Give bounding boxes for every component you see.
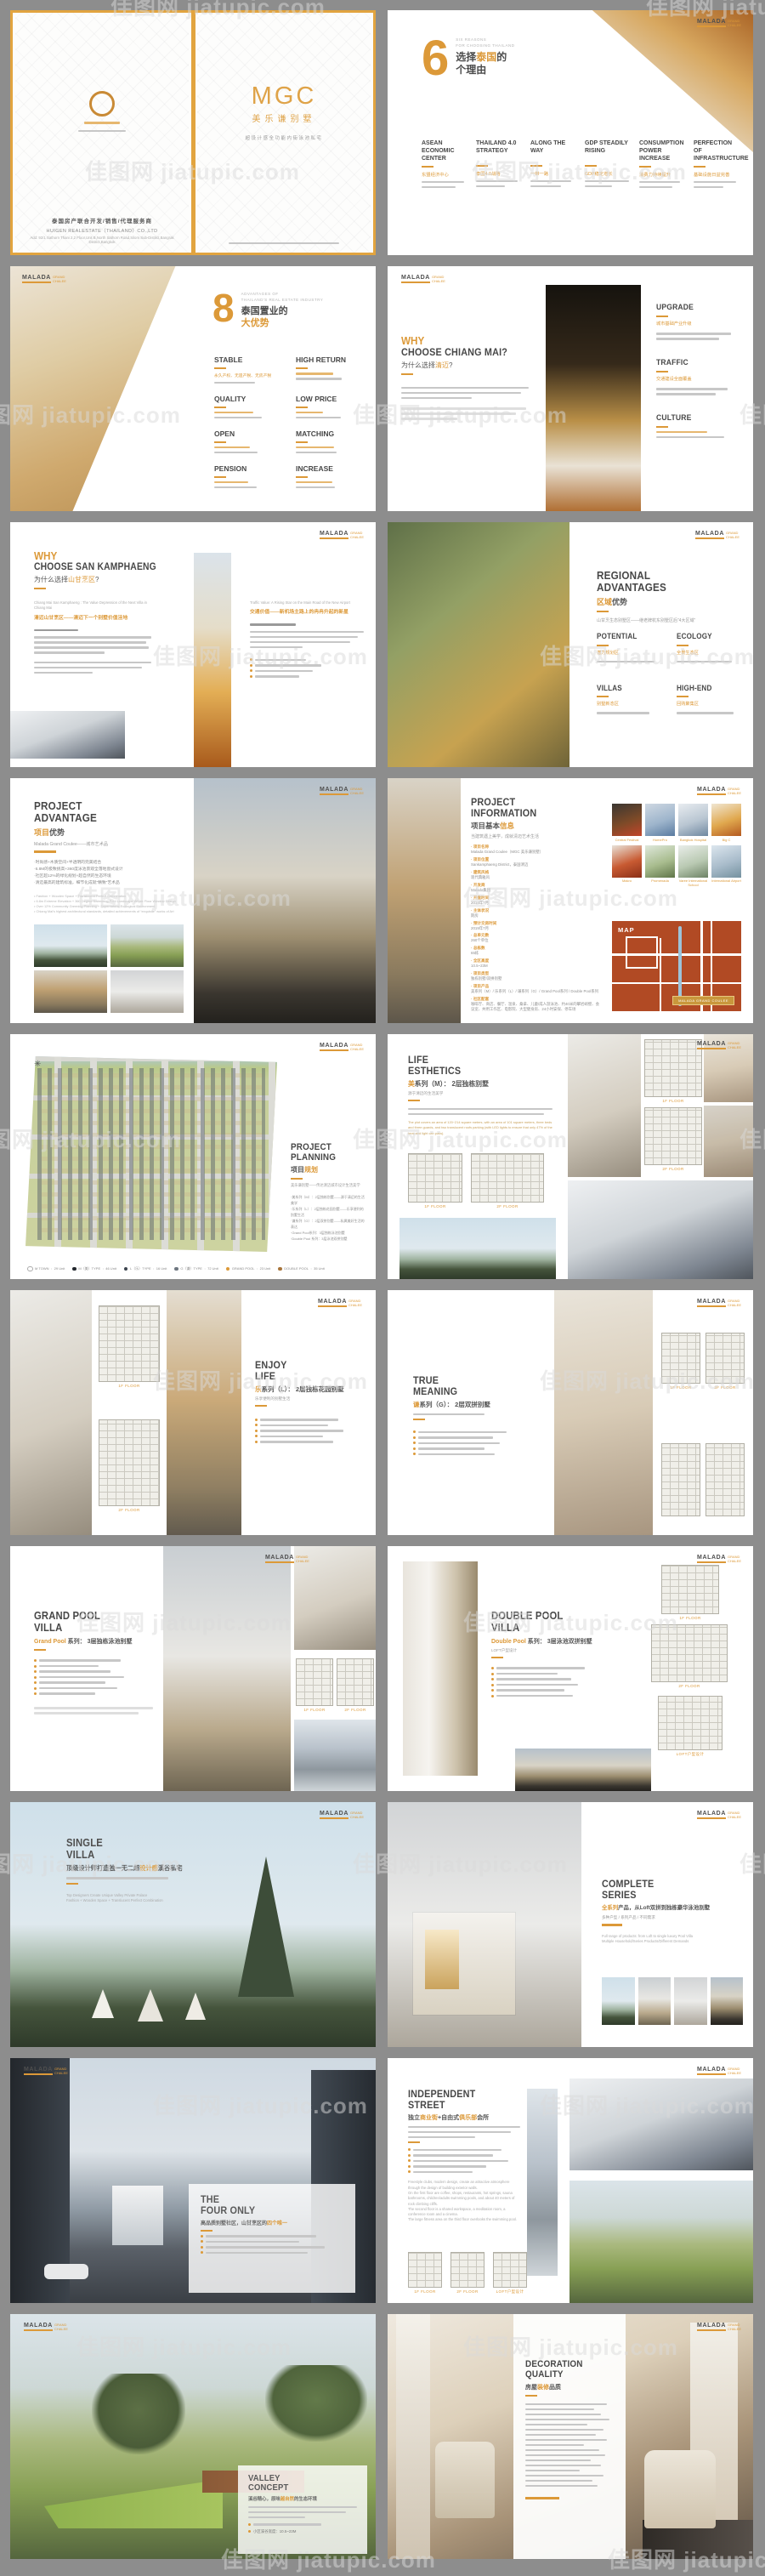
bullet-item — [201, 2246, 343, 2249]
spread-true-meaning: MALADA GRANDCHALEE TRUEMEANING 谦系列（G）： 2… — [388, 1290, 753, 1535]
text-line — [214, 382, 255, 384]
window-curtain — [396, 2314, 430, 2559]
text-line — [206, 2252, 308, 2255]
render-thumb — [34, 970, 107, 1013]
info-field: 总单元数260个单位 — [471, 933, 600, 943]
accent-dash — [597, 696, 609, 697]
amenity-cell: Varee International School — [678, 845, 708, 888]
amenity-cell: Makro — [612, 845, 642, 888]
reason-en: CONSUMPTION POWER INCREASE — [639, 139, 687, 162]
text-line — [255, 670, 313, 673]
page-title-2: VILLA — [66, 1849, 94, 1861]
bullet-item — [255, 1424, 364, 1426]
page-title-2: VILLA — [491, 1622, 519, 1634]
brand-name: MALADA — [401, 275, 430, 283]
brand-name: MALADA — [24, 2067, 53, 2075]
text-line — [525, 2434, 596, 2437]
text-line — [296, 378, 342, 380]
text-line — [248, 2516, 305, 2519]
company-name-en: HUIGEN REALESTATE（THAILAND）CO.,LTD — [22, 227, 182, 234]
cover-back-footer: 泰国房产联合开发/销售/代理服务商 HUIGEN REALESTATE（THAI… — [22, 216, 182, 244]
legend-item: M（美）TYPE: 46 Unit — [72, 1266, 116, 1271]
malada-logo: MALADA GRANDCHALEE — [22, 275, 66, 283]
brand-name: MALADA — [320, 1811, 348, 1819]
developer-logo-icon — [89, 91, 115, 117]
bullet-item — [491, 1689, 619, 1692]
accent-dash — [201, 2230, 212, 2232]
bullet-item — [491, 1678, 619, 1680]
text-line — [34, 646, 149, 649]
brand-sub: GRANDCHALEE — [350, 787, 364, 795]
bullet-item — [250, 669, 364, 672]
render-thumb — [34, 924, 107, 967]
brand-sub: GRANDCHALEE — [728, 19, 741, 27]
plan-homes — [37, 1068, 265, 1240]
text-line — [250, 636, 358, 639]
text-line — [476, 185, 505, 188]
amenity-photo — [678, 845, 708, 878]
advantage-en: HIGH RETURN — [296, 355, 364, 364]
col2-cn: 交通价值——新机场主路上的冉冉升起的新星 — [250, 607, 364, 615]
dp-text-block: DOUBLE POOLVILLA Double Pool 系列： 3层泳池双拼别… — [491, 1611, 619, 1700]
wardrobe-photo — [167, 1290, 241, 1535]
valley-overlay: VALLEYCONCEPT 溪谷精心，原味越自然的生态环境 小区溪谷宽度：10.… — [238, 2465, 367, 2554]
map-title: MAP — [618, 926, 635, 934]
is-en-paragraph: On the first floor are coffee, shops, re… — [408, 2191, 520, 2207]
brand-sub: GRANDCHALEE — [728, 2323, 741, 2331]
pi-fields: 项目名称Malada Grand Coulee（MGC 美乐谦别墅） 项目位置S… — [471, 844, 600, 1012]
text-line — [34, 667, 142, 669]
brand-sub: GRANDCHALEE — [54, 2323, 68, 2331]
page-title-2: CONCEPT — [248, 2482, 288, 2493]
text-line — [597, 661, 654, 663]
spread-grand-pool-villa: MALADA GRANDCHALEE GRAND POOLVILLA Grand… — [10, 1546, 376, 1791]
page-title-1: LIFE — [408, 1054, 428, 1066]
text-line — [296, 412, 323, 414]
malada-logo: MALADA GRANDCHALEE — [265, 1555, 309, 1563]
text-line — [525, 2470, 580, 2472]
text-line — [525, 2414, 601, 2416]
malada-logo: MALADA GRANDCHALEE — [697, 2067, 741, 2075]
spiral-building-photo — [10, 266, 194, 511]
cs-en-2: Multiple Household/Series Products/Diffe… — [602, 1939, 741, 1944]
accent-dash — [639, 166, 651, 168]
reason-item: ASEAN ECONOMIC CENTER 东盟经济中心 — [422, 139, 469, 191]
text-line — [496, 1678, 571, 1680]
text-line — [525, 2454, 605, 2457]
legend-item: G（谦）TYPE: 72 Unit — [174, 1266, 218, 1271]
series-tagline: LOFT户型设计 — [491, 1648, 619, 1653]
company-address: Add: 92/1 Sathorn Thani 2,2 Floor,Unit B… — [22, 236, 182, 244]
text-line — [525, 2419, 609, 2421]
amenity-cell: International Airport — [711, 845, 741, 888]
bullet-item — [34, 1665, 153, 1668]
bedroom-photo — [554, 1290, 653, 1535]
title-cn: 房屋装修品质 — [525, 2383, 614, 2391]
text-line — [422, 181, 464, 184]
info-field: 社区配套咖啡厅、商店、餐厅、温泉、桑拿、儿童/成人游泳池、约40米的攀岩峭壁、会… — [471, 997, 600, 1012]
paragraph-placeholder — [491, 1667, 619, 1697]
malada-logo: MALADA GRANDCHALEE — [320, 787, 364, 795]
planning-bullets: ·美系列（M）：2层独栋别墅——源于清迈的生活美学 ·乐系列（L）：2层独栋花园… — [291, 1194, 365, 1242]
bullet-item — [34, 1676, 153, 1679]
bullet-item — [491, 1673, 619, 1675]
reason-en: ALONG THE WAY — [530, 139, 578, 162]
text-line — [250, 631, 364, 634]
villa-window-glow — [425, 1930, 459, 1989]
spread-four-only: MALADA GRANDCHALEE THEFOUR ONLY 高品质别墅社区，… — [10, 2058, 376, 2303]
bullet: ·谦系列（G）：2层双拼别墅——私属美好生活的表达 — [291, 1218, 365, 1230]
text-line — [525, 2485, 598, 2488]
car — [44, 2264, 88, 2279]
sk-col2: Traffic Value: A Rising Star on the Main… — [250, 600, 364, 680]
text-line — [525, 2403, 607, 2406]
page-title-2: ESTHETICS — [408, 1065, 461, 1077]
text-line — [413, 2149, 501, 2152]
text-line — [296, 372, 333, 375]
floorplan — [705, 1333, 745, 1384]
text-line — [656, 333, 731, 335]
page-title-2: INFORMATION — [471, 807, 536, 819]
accent-dash — [408, 1100, 420, 1101]
brand-sub: GRANDCHALEE — [348, 1299, 362, 1307]
advantage-en: OPEN — [214, 429, 282, 438]
brand-sub: GRANDCHALEE — [53, 275, 66, 283]
spread-decoration-quality: MALADA GRANDCHALEE DECORATIONQUALITY 房屋装… — [388, 2314, 753, 2559]
reason-cn: 消费力持续提升 — [639, 171, 687, 178]
amenity-photo — [678, 804, 708, 836]
regional-item: ECOLOGY 全景生态区 — [677, 633, 741, 666]
text-line — [677, 661, 732, 663]
text-line — [255, 659, 306, 662]
sv-text-block: SINGLEVILLA 顶级设计师打造独一无二超设计感溪谷私宅 Top Desi… — [66, 1838, 253, 1903]
floorplan-cell: 2F FLOOR — [99, 1419, 160, 1512]
subtitle-en-2: Fashion + Wooden Space + Translucent Per… — [66, 1898, 253, 1903]
bullet-item — [413, 1442, 541, 1444]
bullet-item — [34, 1687, 153, 1690]
sofa — [644, 2450, 716, 2528]
text-line — [496, 1667, 585, 1669]
text-line — [496, 1689, 564, 1692]
text-line — [34, 641, 146, 644]
reason-en: THAILAND 4.0 STRATEGY — [476, 139, 524, 162]
text-line — [677, 712, 734, 714]
title-cn: 高品质别墅社区，山甘烹区的四个唯一 — [201, 2219, 343, 2226]
spread-double-pool-villa: MALADA GRANDCHALEE DOUBLE POOLVILLA Doub… — [388, 1546, 753, 1791]
text-line — [656, 388, 728, 390]
text-line — [214, 417, 262, 419]
pa-bullets-cn: ·时尚感+木质空间+半透明的完美结合 ·6.8M的极致挑高+360度泳池景观全落… — [34, 860, 184, 888]
reason-cn: GDP稳定增长 — [585, 170, 632, 177]
upgrade-block: UPGRADE 城市基础产业升级 — [656, 304, 741, 340]
title-cn: 独立商业街+自由式俱乐部会所 — [408, 2113, 520, 2122]
culture-block: CULTURE — [656, 414, 741, 439]
reason-cn: 一带一路 — [530, 170, 578, 177]
big-number: 6 — [422, 37, 449, 79]
map-road — [612, 982, 741, 984]
brand-name: MALADA — [24, 2323, 53, 2331]
page-title-1: COMPLETE — [602, 1878, 654, 1890]
amenity-cell: HomePro — [645, 804, 675, 842]
text-line — [585, 180, 629, 183]
spread-independent-street: MALADA GRANDCHALEE INDEPENDENTSTREET 独立商… — [388, 2058, 753, 2303]
cs-thumb-row — [602, 1977, 743, 2025]
bullet-item — [250, 675, 364, 678]
reason-item: GDP STEADILY RISING GDP稳定增长 — [585, 139, 632, 191]
title-cn: 项目优势 — [34, 827, 184, 838]
info-field: 项目名称Malada Grand Coulee（MGC 美乐谦别墅） — [471, 844, 600, 855]
text-line — [250, 641, 350, 644]
floorplan — [661, 1443, 700, 1516]
cover-front-footer — [204, 242, 364, 245]
title-cn: 项目基本信息 — [471, 821, 600, 831]
bullet-item — [248, 2523, 357, 2526]
accent-dash — [656, 316, 668, 317]
brand-sub: GRANDCHALEE — [296, 1555, 309, 1563]
item-cn: 别墅新态区 — [597, 701, 661, 707]
text-line — [34, 1712, 139, 1714]
malada-logo: MALADA GRANDCHALEE — [401, 275, 445, 283]
series-title: Double Pool 系列： 3层泳池双拼别墅 — [491, 1637, 619, 1646]
four-only-overlay: THEFOUR ONLY 高品质别墅社区，山甘烹区的四个唯一 — [189, 2184, 355, 2293]
street-render — [569, 2078, 753, 2170]
text-line — [296, 446, 334, 449]
malada-logo: MALADA GRANDCHALEE — [695, 531, 739, 539]
text-line — [413, 2160, 508, 2163]
advantage-en: INCREASE — [296, 464, 364, 473]
title-cn: 项目规划 — [291, 1165, 365, 1174]
el-text-block: ENJOYLIFE 乐系列（L）： 2层独栋花园别墅 乐享便利的别墅生活 — [255, 1360, 364, 1446]
legend-item: M TOWN: 29 Unit — [27, 1266, 65, 1272]
accent-dash — [677, 696, 688, 697]
brand-sub: GRANDCHALEE — [350, 1811, 364, 1819]
malada-logo: MALADA GRANDCHALEE — [697, 1555, 741, 1563]
lake-photo — [10, 711, 125, 759]
floorplan — [337, 1658, 374, 1706]
text-line — [656, 431, 707, 434]
floorplan-cell: 1F FLOOR — [296, 1658, 333, 1712]
brand-name: MALADA — [697, 2323, 726, 2331]
advantage-en: LOW PRICE — [296, 395, 364, 403]
text-line — [214, 486, 257, 489]
info-field: 全区高度10.5~23M — [471, 958, 600, 969]
page-title-2: LIFE — [255, 1370, 275, 1382]
text-line — [525, 2444, 584, 2447]
bullet-item — [255, 1419, 364, 1421]
floorplan-cell: 2F FLOOR — [644, 1107, 702, 1171]
advantage-item: STABLE 永久产权、无遗产税、无房产税 — [214, 355, 282, 387]
amenity-photo — [612, 804, 642, 836]
reason-item: CONSUMPTION POWER INCREASE 消费力持续提升 — [639, 139, 687, 191]
tm-text-block: TRUEMEANING 谦系列（G）： 2层双拼别墅 — [413, 1375, 541, 1459]
malada-logo: MALADA GRANDCHALEE — [697, 1299, 741, 1307]
bullet-item — [413, 1436, 541, 1439]
gp-text-block: GRAND POOLVILLA Grand Pool 系列： 3层独栋泳池别墅 — [34, 1611, 153, 1717]
accent-dash — [530, 165, 542, 167]
text-line — [250, 623, 296, 626]
floorplan-cell: 1F FLOOR — [661, 1565, 719, 1620]
text-line — [525, 2459, 591, 2462]
page-title-2: PLANNING — [291, 1152, 336, 1163]
floorplan — [99, 1305, 160, 1382]
floorplan — [644, 1039, 702, 1097]
info-field: 主体状况期房 — [471, 908, 600, 918]
spread-project-advantage: MALADA GRANDCHALEE PROJECTADVANTAGE 项目优势… — [10, 778, 376, 1023]
item-en: POTENTIAL — [597, 633, 654, 641]
floorplan-cell: 2F FLOOR — [651, 1624, 728, 1688]
bullet: ·Grand Pool系列：3层独栋泳池别墅 — [291, 1230, 365, 1236]
accent-dash — [413, 1419, 425, 1420]
page-title-1: DOUBLE POOL — [491, 1610, 563, 1622]
item-cn: 全景生态区 — [677, 650, 741, 656]
spread-why-chiangmai: MALADA GRANDCHALEE WHY CHOOSE CHIANG MAI… — [388, 266, 753, 511]
text-line — [408, 2136, 475, 2139]
item-cn: 潜力规划区 — [597, 650, 661, 656]
dq-panel: DECORATIONQUALITY 房屋装修品质 — [513, 2314, 626, 2559]
tall-building-photo — [194, 553, 231, 767]
regional-item: POTENTIAL 潜力规划区 — [597, 633, 661, 666]
text-line — [39, 1665, 99, 1668]
brand-sub: GRANDCHALEE — [726, 531, 739, 539]
text-line — [525, 2480, 592, 2482]
bullet-item — [250, 664, 364, 667]
brand-sub: GRANDCHALEE — [728, 1811, 741, 1819]
amenity-photo — [612, 845, 642, 878]
bullet-item — [413, 1430, 541, 1433]
floorpl an-cell: 1F FLOOR — [661, 1333, 700, 1390]
text-line — [229, 242, 339, 245]
floorplan — [661, 1333, 700, 1384]
text-line — [214, 446, 250, 449]
item-cn: 回购聚集区 — [677, 701, 741, 707]
atrium-photo — [403, 1561, 478, 1776]
text-line — [296, 486, 335, 489]
malada-logo: MALADA GRANDCHALEE — [697, 1811, 741, 1819]
pa-subtitle: Malada Grand Coulee——城市艺术品 — [34, 841, 184, 847]
accent-dash — [585, 165, 597, 167]
text-line — [496, 1673, 558, 1675]
accent-dash — [214, 441, 226, 443]
accent-dash — [602, 1924, 622, 1926]
accent-dash — [408, 2141, 420, 2143]
render-thumb — [110, 970, 184, 1013]
floorplan — [661, 1565, 719, 1614]
spread-single-villa: MALADA GRANDCHALEE SINGLEVILLA 顶级设计师打造独一… — [10, 1802, 376, 2047]
page-title: CHOOSE SAN KAMPHAENG — [34, 562, 164, 572]
bullet-item — [201, 2235, 343, 2238]
text-line — [401, 387, 529, 390]
text-line — [496, 1695, 573, 1697]
dining-photo — [568, 1034, 641, 1177]
text-line — [260, 1419, 338, 1421]
brand-sub: GRANDCHALEE — [350, 531, 364, 539]
text-line — [248, 2511, 346, 2514]
text-line — [296, 417, 341, 419]
accent-dash — [525, 2497, 559, 2499]
title-cn: 区域优势 — [597, 596, 739, 607]
master-plan-map — [25, 1056, 277, 1252]
big-number: 8 — [212, 292, 235, 329]
page-title-2: STREET — [408, 2099, 445, 2111]
text-line — [255, 664, 321, 667]
text-line — [530, 185, 561, 188]
floorplan-cell: 2F FLOOR — [705, 1333, 745, 1390]
malada-logo: MALADA GRANDCHALEE — [320, 1043, 364, 1051]
bullet-item — [250, 658, 364, 661]
text-line — [408, 2131, 511, 2134]
tree-canopy — [92, 2374, 185, 2454]
text-line — [656, 338, 719, 340]
text-line — [260, 1430, 343, 1432]
text-line — [34, 672, 93, 674]
series-tagline: 乐享便利的别墅生活 — [255, 1396, 364, 1402]
item-en: ECOLOGY — [677, 633, 734, 641]
advantage-item: INCREASE — [296, 464, 364, 492]
spread-cover: 泰国房产联合开发/销售/代理服务商 HUIGEN REALESTATE（THAI… — [10, 10, 376, 255]
text-line — [206, 2241, 299, 2243]
spread-regional-advantages: MALADA GRANDCHALEE REGIONALADVANTAGES 区域… — [388, 522, 753, 767]
col2-en: Traffic Value: A Rising Star on the Main… — [250, 600, 364, 606]
advantage-item: HIGH RETURN — [296, 355, 364, 387]
brand-name: MALADA — [320, 531, 348, 539]
series-paragraph-en: The plot covers an area of 120~214 squar… — [408, 1120, 552, 1135]
planning-subtitle: 美乐谦别墅——传达清迈城市设计生活美学 — [291, 1183, 365, 1188]
page-title-1: VALLEY — [248, 2473, 280, 2483]
text-line — [206, 2235, 316, 2238]
text-line — [418, 1447, 484, 1450]
text-line — [296, 452, 337, 454]
accent-dash — [214, 407, 226, 408]
bullet-item — [255, 1441, 364, 1443]
map-road — [660, 938, 661, 1011]
series-title: 美系列（M）： 2层独栋别墅 — [408, 1079, 552, 1089]
info-field: 建筑风格现代典雅风 — [471, 870, 600, 880]
is-en-paragraph: The large fitness area on the third floo… — [408, 2217, 520, 2222]
amenity-photo — [711, 845, 741, 878]
text-line — [39, 1659, 121, 1662]
floorplan — [408, 2252, 442, 2288]
chiangmai-text-block: WHY CHOOSE CHIANG MAI? 为什么选择清迈? — [401, 334, 529, 423]
text-line — [656, 436, 724, 439]
traffic-block: TRAFFIC 交通建设全面覆盖 — [656, 359, 741, 395]
text-line — [413, 2171, 473, 2174]
bullet-cn: ·时尚感+木质空间+半透明的完美结合 — [34, 860, 184, 867]
accent-dash — [422, 166, 433, 168]
series-title: 乐系列（L）： 2层独栋花园别墅 — [255, 1385, 364, 1394]
brand-sub: GRANDCHALEE — [728, 1041, 741, 1049]
series-thumb — [711, 1977, 744, 2025]
bullet-item — [255, 1430, 364, 1432]
text-line — [401, 407, 526, 410]
info-field: 预计交房时间2019年7月 — [471, 921, 600, 931]
bullet-item — [34, 1692, 153, 1695]
text-line — [525, 2475, 603, 2477]
floorplan — [651, 1624, 728, 1682]
tree-canopy — [265, 2365, 367, 2442]
paragraph-placeholder — [255, 1419, 364, 1443]
train-station-photo — [546, 285, 641, 511]
bullet-item — [413, 1447, 541, 1450]
page-title-1: REGIONAL — [597, 569, 650, 582]
bullet-item — [408, 2148, 520, 2151]
is-plan-strip: 1F FLOOR 2F FLOOR LOFT户型设计 — [408, 2252, 527, 2295]
series-title: 谦系列（G）： 2层双拼别墅 — [413, 1400, 541, 1409]
item-en: HIGH-END — [677, 685, 734, 693]
page-title-2: SERIES — [602, 1889, 637, 1901]
brand-name: MALADA — [695, 531, 724, 539]
floorplan — [705, 1443, 745, 1516]
page-title-1: DECORATION — [525, 2359, 583, 2369]
